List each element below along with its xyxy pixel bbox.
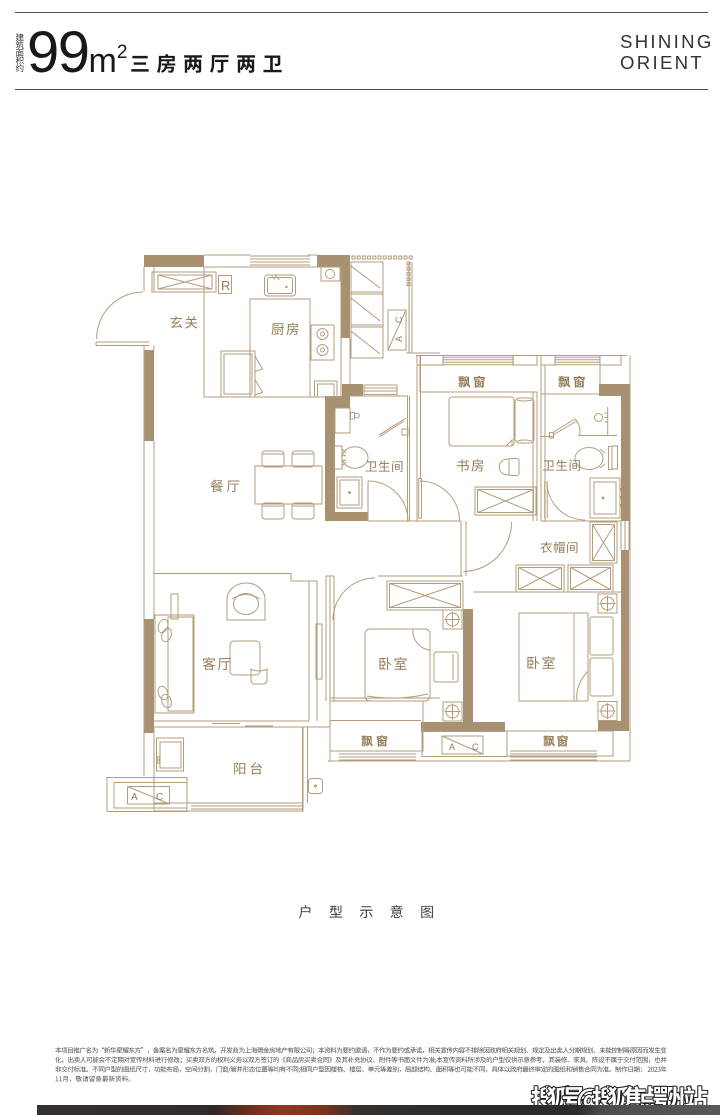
svg-text:R: R bbox=[221, 278, 230, 293]
svg-text:A: A bbox=[131, 792, 138, 803]
svg-text:A: A bbox=[394, 336, 404, 342]
svg-text:A: A bbox=[449, 742, 455, 752]
svg-text:C: C bbox=[472, 742, 479, 752]
svg-text:C: C bbox=[394, 316, 404, 323]
svg-text:C: C bbox=[156, 792, 163, 803]
